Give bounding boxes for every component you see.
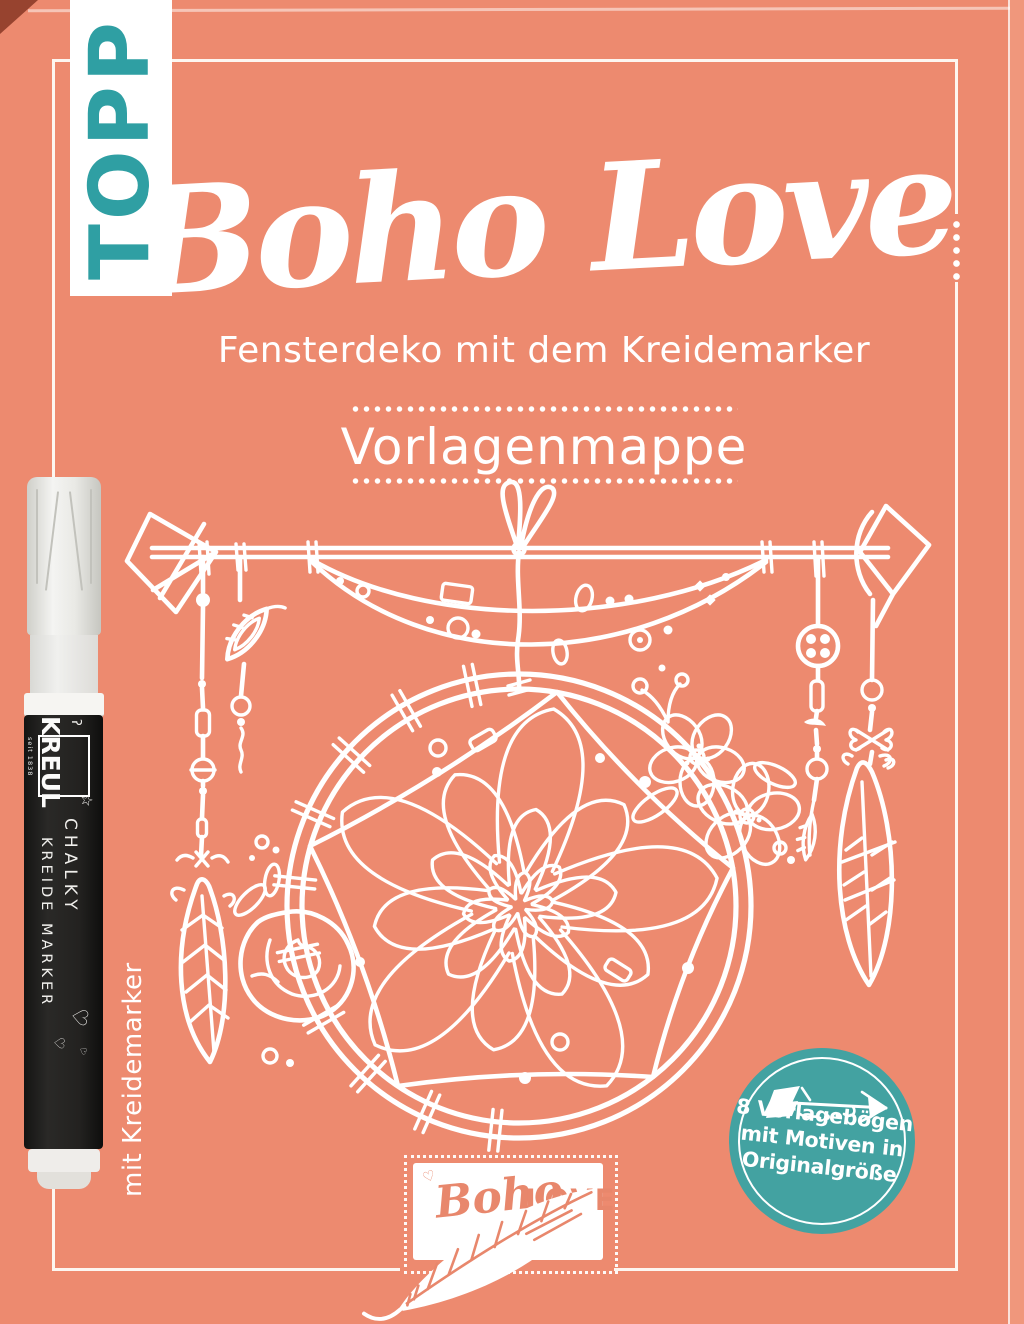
chalk-marker-pen: ʔ KREUL seit 1838 ☆ CHALKY KREIDE MARKER… <box>24 477 104 1191</box>
arrow-fletching <box>856 506 929 626</box>
button-charm-string <box>795 557 838 861</box>
pen-end-cap <box>28 1149 100 1172</box>
ring-bindings <box>274 664 502 1151</box>
book-cover-photo: { "publisher": { "logo_text": "TOPP" }, … <box>0 0 1024 1324</box>
hanging-string-left <box>177 557 228 866</box>
dreamcatcher-web <box>310 692 733 1086</box>
feather-right-string <box>850 600 892 766</box>
corner-shadow <box>0 0 38 34</box>
pen-barrel: ʔ KREUL seit 1838 ☆ CHALKY KREIDE MARKER… <box>24 715 103 1149</box>
rose-bottom-left <box>230 836 353 1067</box>
star-doodle-icon: ☆ <box>78 790 96 811</box>
logo-caps-text: LOVE <box>525 1183 617 1217</box>
heart-doodle-icon: ♡ <box>76 1044 89 1056</box>
pen-label-kreide-marker: KREIDE MARKER <box>38 837 54 1008</box>
pen-cap <box>27 477 101 635</box>
hook-doodle-icon: ʔ <box>68 719 83 726</box>
book-title: Boho Love <box>75 92 1013 355</box>
book-top-edge-highlight <box>28 7 1014 13</box>
flower-top <box>628 665 802 872</box>
dreamcatcher-ring <box>274 552 751 1151</box>
flower-cluster <box>230 665 802 1068</box>
pen-end-cap-tip <box>37 1172 91 1189</box>
frame-line-bottom-right <box>614 1268 957 1271</box>
arrow-rod <box>127 482 929 626</box>
vertical-note: mit Kreidemarker <box>118 912 156 1197</box>
arrow-left-tip <box>127 514 216 612</box>
book-subtitle: Fensterdeko mit dem Kreidemarker <box>80 330 1008 371</box>
leaf-charm-string <box>215 558 285 772</box>
heart-doodle-icon: ♡ <box>50 1036 67 1050</box>
pen-brand-text: KREUL <box>36 716 65 772</box>
hanging-loop <box>503 482 555 547</box>
frame-line-top <box>172 59 957 62</box>
edition-label: Vorlagenmappe <box>80 418 1008 474</box>
pen-collar-ring <box>24 693 104 717</box>
heart-doodle-icon: ♡ <box>66 1006 93 1029</box>
boho-love-logo: ♡ Boho LOVE <box>413 1163 603 1260</box>
template-count-badge: 8 Vorlagebögen mit Motiven in Originalgr… <box>729 1048 915 1234</box>
page-edge-right <box>1010 0 1024 1324</box>
frame-line-bottom-left <box>52 1268 400 1271</box>
feather-right <box>839 754 895 985</box>
pen-label-chalky: CHALKY <box>60 818 80 915</box>
pen-cap-collar <box>30 635 98 693</box>
dotted-divider-top <box>80 406 1008 412</box>
dotted-divider-bottom <box>80 478 1008 484</box>
pen-brand-tagline: seit 1838 <box>26 737 34 776</box>
page-edge-right-line <box>1008 0 1010 1324</box>
feather-left <box>172 879 234 1062</box>
bead-garland <box>312 560 766 665</box>
